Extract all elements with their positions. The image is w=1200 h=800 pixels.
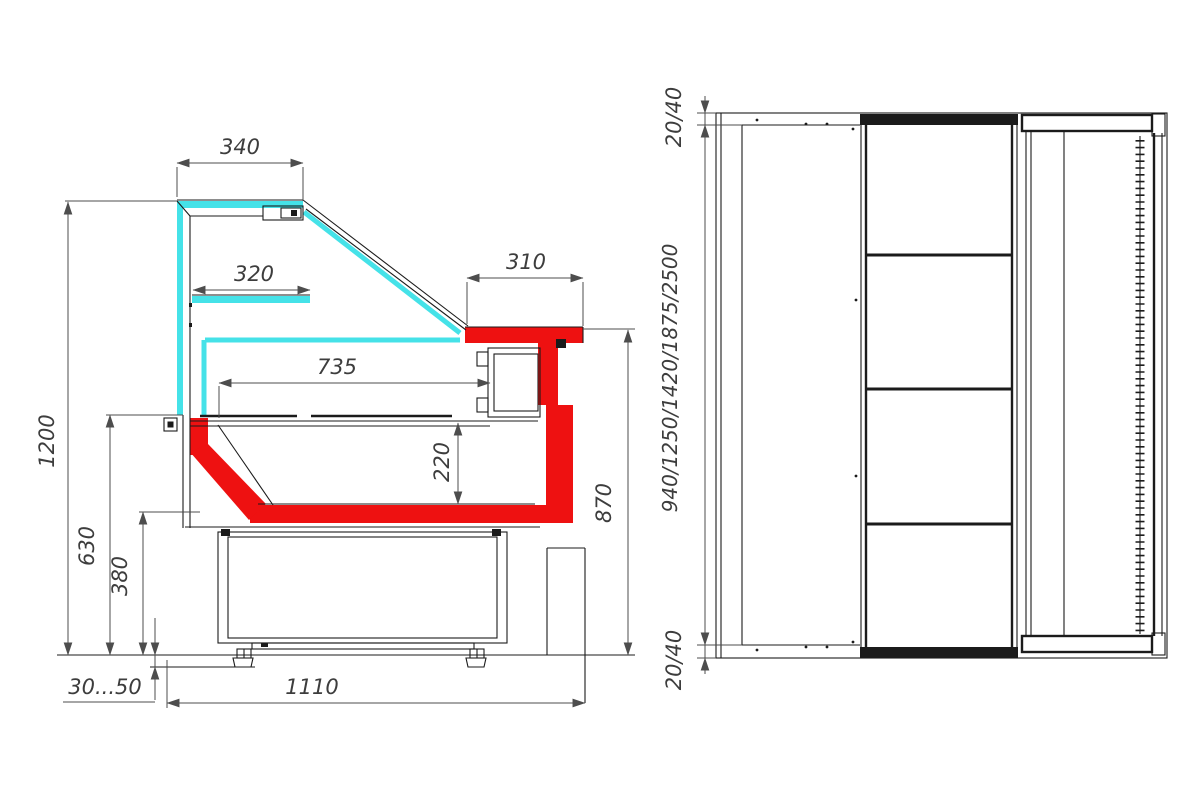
dim-label-870: 870 [592, 483, 616, 523]
end-tab-bottom [1152, 633, 1165, 655]
dim-label-1200: 1200 [35, 414, 59, 467]
dim-310: 310 [467, 250, 583, 326]
dim-label-1110: 1110 [285, 675, 338, 699]
dim-870: 870 [583, 329, 635, 655]
back-counter-panel [756, 119, 858, 652]
dim-label-20-40-top: 20/40 [662, 87, 686, 148]
dim-label-30-50: 30...50 [68, 675, 141, 699]
red-liner-highlight [190, 327, 583, 523]
dim-label-340: 340 [220, 135, 260, 159]
end-tab-top [1152, 114, 1165, 136]
dim-label-380: 380 [108, 556, 132, 596]
dim-30-50: 30...50 [63, 618, 155, 702]
drawing-page: 1200 630 380 30...50 1110 [0, 0, 1200, 800]
base-cabinet [218, 529, 507, 649]
deck-sections [860, 114, 1018, 658]
dim-1200: 1200 [35, 201, 177, 655]
dim-label-735: 735 [317, 355, 357, 379]
dim-label-20-40-bottom: 20/40 [662, 630, 686, 691]
dim-20-40-bottom: 20/40 [662, 630, 742, 691]
dim-label-220: 220 [430, 442, 454, 482]
dim-label-630: 630 [75, 526, 99, 566]
dim-label-lengths: 940/1250/1420/1875/2500 [658, 244, 682, 513]
plan-outline [716, 113, 1167, 658]
top-plan-view: 20/40 940/1250/1420/1875/2500 20/40 [658, 87, 1167, 691]
front-glass-section [1022, 114, 1165, 655]
rear-step [547, 548, 585, 703]
dim-735: 735 [219, 355, 490, 418]
dim-220: 220 [430, 423, 458, 504]
dim-340: 340 [177, 135, 303, 201]
dim-lengths: 940/1250/1420/1875/2500 [658, 125, 705, 645]
dim-20-40-top: 20/40 [662, 87, 742, 148]
technical-drawing-canvas: 1200 630 380 30...50 1110 [0, 0, 1200, 800]
dim-label-310: 310 [506, 250, 546, 274]
dim-630: 630 [75, 415, 183, 655]
dim-380: 380 [108, 512, 200, 655]
front-glass-slanted [303, 200, 468, 330]
adjustable-feet [233, 649, 486, 667]
side-section-view: 1200 630 380 30...50 1110 [35, 135, 635, 708]
dim-320: 320 [193, 262, 310, 290]
dim-label-320: 320 [234, 262, 274, 286]
